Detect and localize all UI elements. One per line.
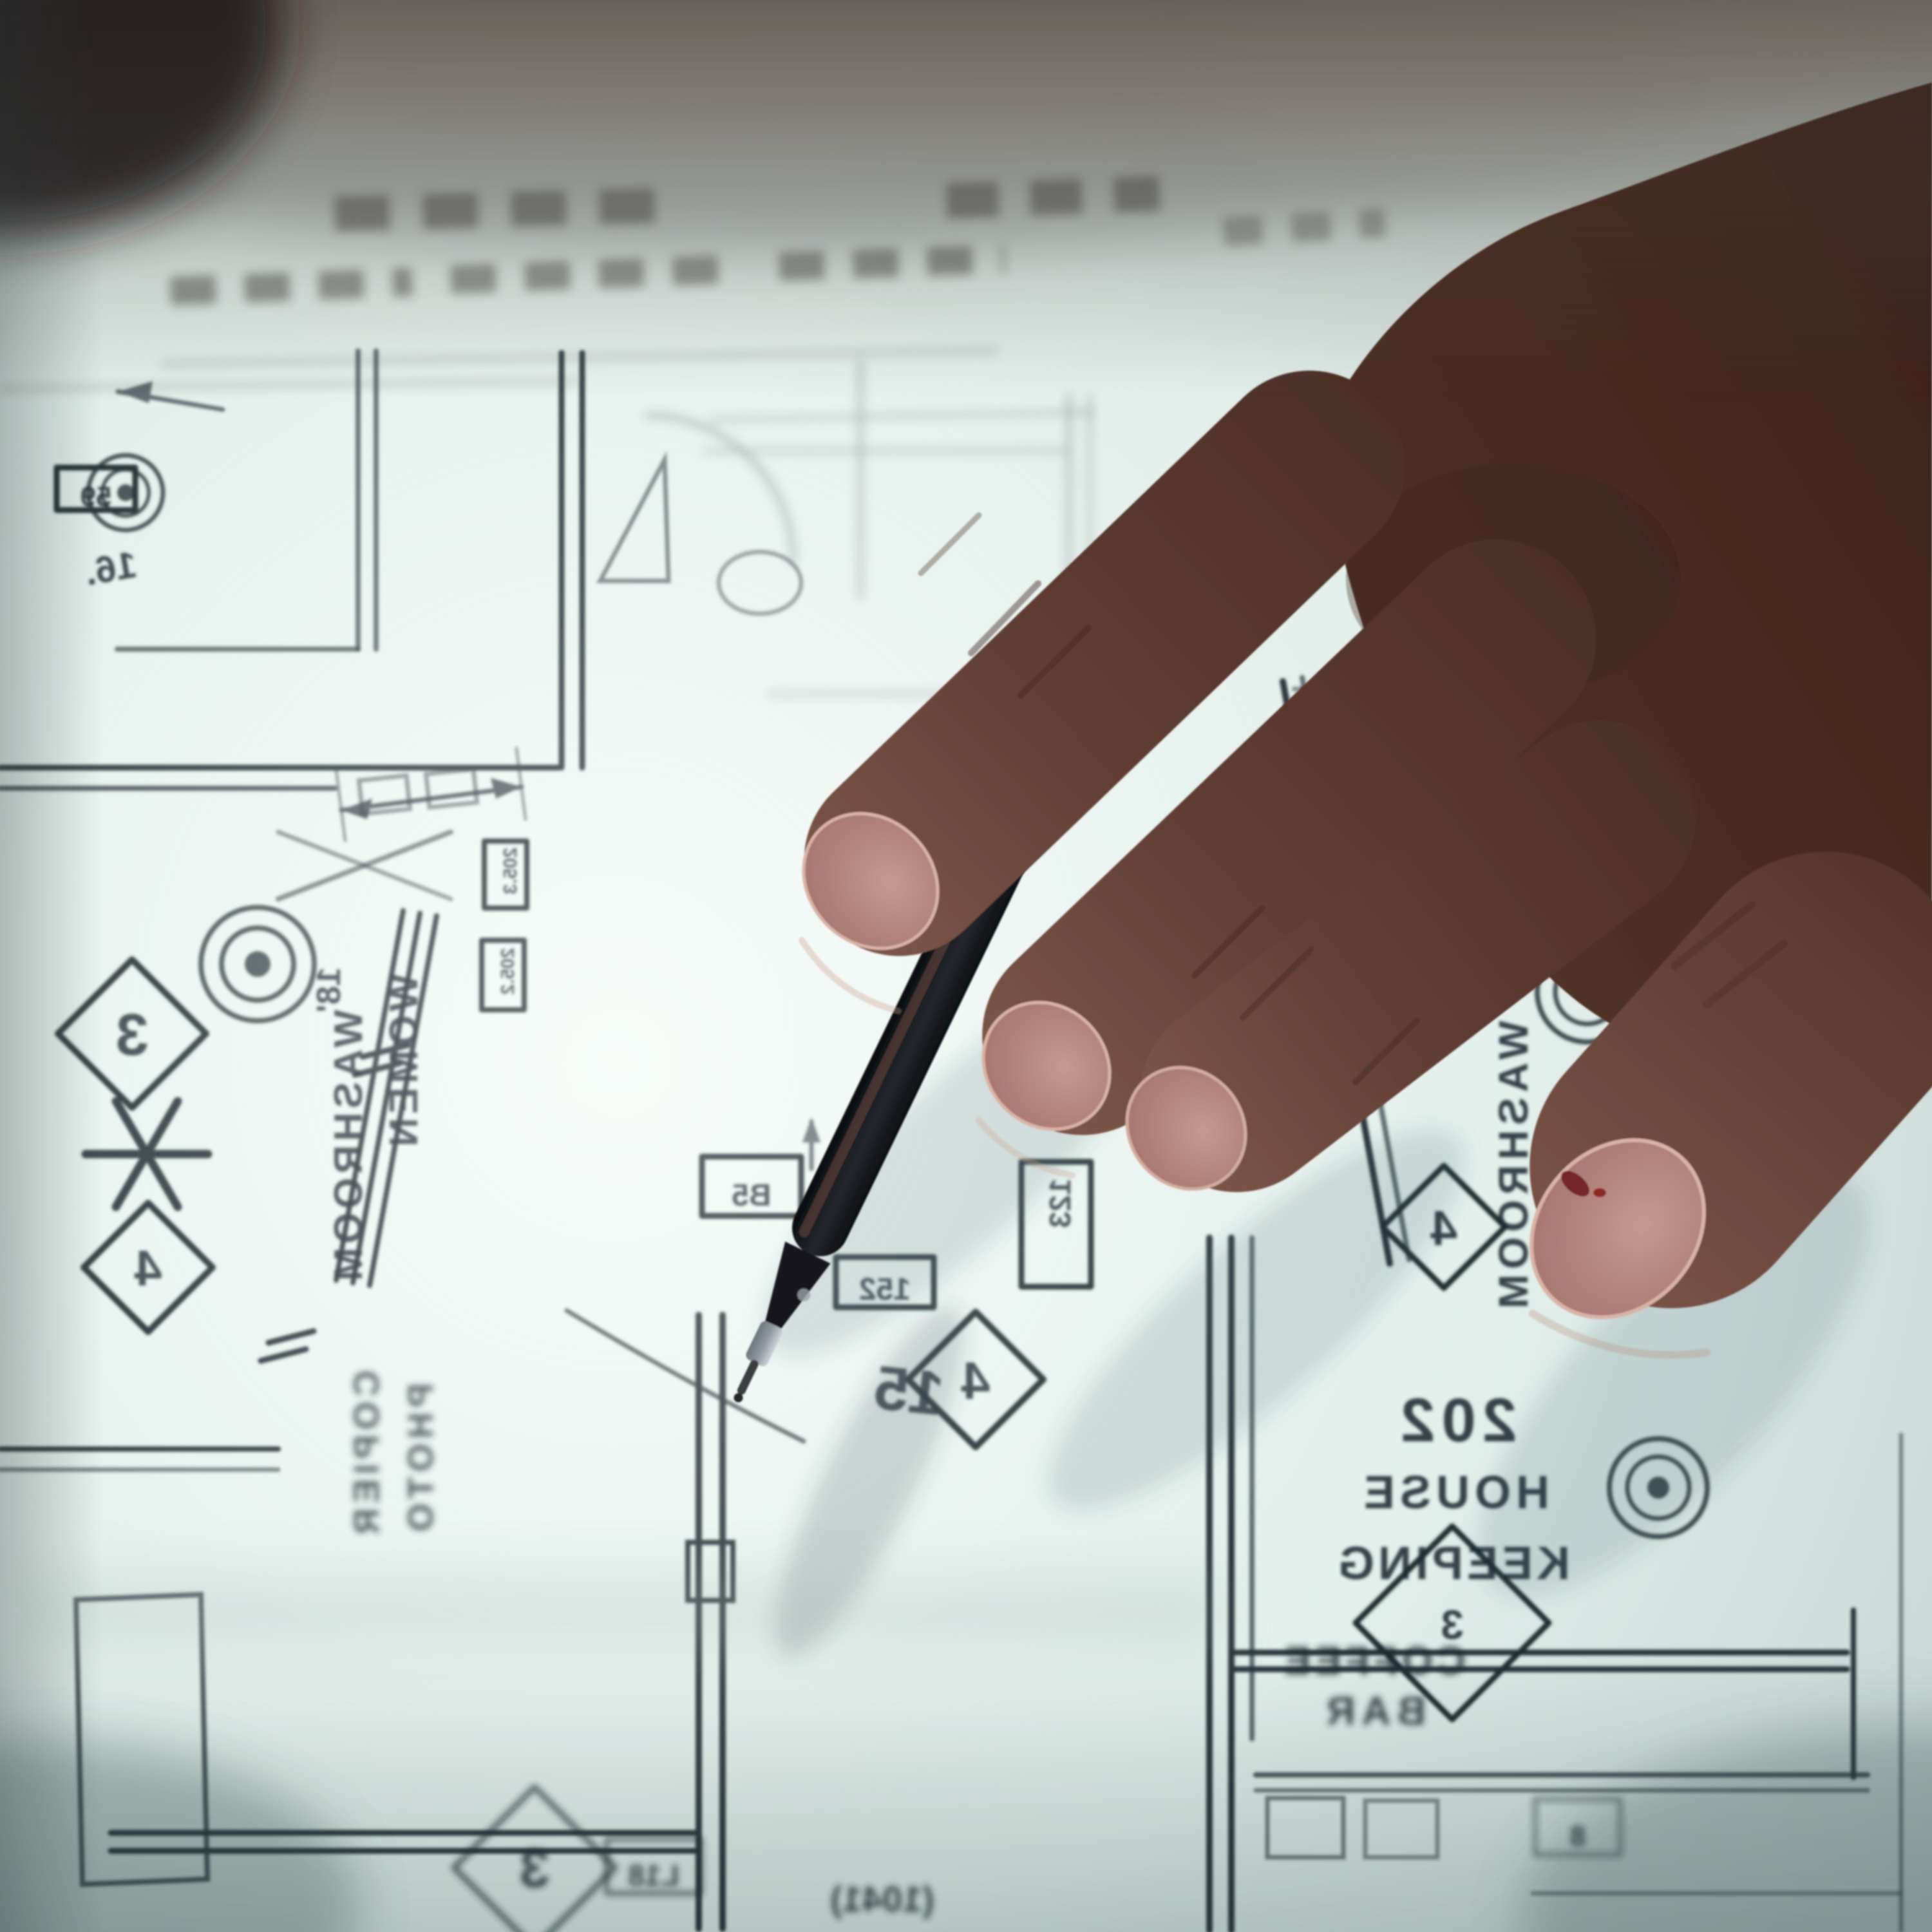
blueprint-photo: 3 4 4 4 3 4 3 59 205.3 205.2 152 123 B5 …	[0, 0, 1932, 1932]
room-label-men-washroom: WASHROOM	[1490, 1021, 1537, 1314]
nail-nick	[1593, 1188, 1606, 1197]
photo-canvas: 3 4 4 4 3 4 3 59 205.3 205.2 152 123 B5 …	[0, 0, 1932, 1932]
room-number-202: 202	[1394, 1386, 1517, 1455]
